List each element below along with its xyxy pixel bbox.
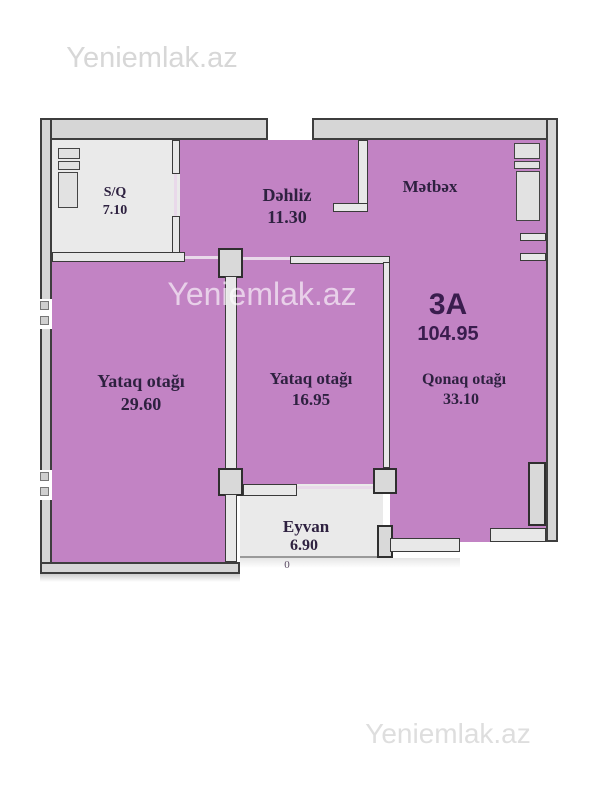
room-area-sq: 7.10 bbox=[103, 204, 128, 218]
window-mark-icon bbox=[40, 472, 49, 481]
wall-right-stub-a bbox=[520, 233, 546, 241]
pillar-separator-bottom bbox=[218, 468, 243, 496]
watermark-top: Yeniemlak.az bbox=[66, 42, 237, 75]
door-balcony bbox=[297, 486, 373, 489]
window-mark-icon bbox=[40, 487, 49, 496]
kitchen-counter-top bbox=[514, 143, 540, 159]
room-label-metbex: Mətbəx bbox=[403, 178, 458, 195]
room-area-yataq2: 16.95 bbox=[292, 391, 330, 408]
window-left-lower bbox=[39, 470, 52, 500]
kitchen-counter-tall bbox=[516, 171, 540, 221]
room-area-qonaq: 33.10 bbox=[443, 392, 479, 408]
wall-bottom-left bbox=[40, 562, 240, 574]
window-mark-icon bbox=[40, 301, 49, 310]
room-label-yataq2: Yataq otağı bbox=[270, 370, 353, 387]
wall-livingroom-bottom-left bbox=[390, 538, 460, 552]
unit-label: 3A bbox=[429, 290, 467, 320]
wall-livingroom-bottom-right bbox=[490, 528, 546, 542]
room-area-yataq1: 29.60 bbox=[121, 395, 162, 413]
wall-sq-right-upper bbox=[172, 140, 180, 174]
window-left-upper bbox=[39, 299, 52, 329]
wall-kitchen-partition-foot bbox=[333, 203, 368, 212]
sq-fixture-shelf bbox=[58, 148, 80, 159]
room-area-dehliz: 11.30 bbox=[267, 208, 307, 226]
scan-shadow-left bbox=[40, 574, 240, 582]
scan-shadow-balcony bbox=[240, 558, 460, 568]
wall-right bbox=[546, 118, 558, 542]
room-label-eyvan: Eyvan bbox=[283, 518, 329, 535]
wall-balcony-top bbox=[243, 484, 297, 496]
wall-right-stub-b bbox=[520, 253, 546, 261]
window-mark-icon bbox=[40, 316, 49, 325]
room-label-dehliz: Dəhliz bbox=[263, 186, 312, 204]
pillar-separator-top bbox=[218, 248, 243, 278]
sq-fixture-bath bbox=[58, 172, 78, 208]
room-label-qonaq: Qonaq otağı bbox=[422, 372, 506, 388]
door-bedroom1 bbox=[185, 256, 218, 259]
wall-bedroom1-top bbox=[52, 252, 185, 262]
wall-separator-lower bbox=[225, 494, 237, 562]
pillar-bedroom2-bottom bbox=[373, 468, 397, 494]
floor-plan: S/Q 7.10 Dəhliz 11.30 Mətbəx 3A 104.95 Q… bbox=[38, 112, 562, 582]
kitchen-counter-mid bbox=[514, 161, 540, 169]
stray-mark: 0 bbox=[284, 560, 290, 571]
door-sq bbox=[174, 174, 177, 216]
wall-bedroom2-right bbox=[383, 262, 390, 468]
listing-photo: Yeniemlak.az bbox=[0, 0, 600, 800]
wall-top-left bbox=[40, 118, 268, 140]
wall-kitchen-partition bbox=[358, 140, 368, 205]
wall-bedroom2-top bbox=[290, 256, 390, 264]
pillar-right-wall bbox=[528, 462, 546, 526]
watermark-middle: Yeniemlak.az bbox=[167, 276, 356, 313]
sq-fixture-sink bbox=[58, 161, 80, 170]
room-area-eyvan: 6.90 bbox=[290, 538, 318, 554]
door-bedroom2 bbox=[243, 257, 290, 260]
room-label-yataq1: Yataq otağı bbox=[97, 372, 185, 390]
wall-top-right bbox=[312, 118, 558, 140]
unit-area: 104.95 bbox=[417, 324, 478, 344]
room-label-sq: S/Q bbox=[104, 186, 127, 200]
watermark-bottom: Yeniemlak.az bbox=[365, 718, 531, 750]
